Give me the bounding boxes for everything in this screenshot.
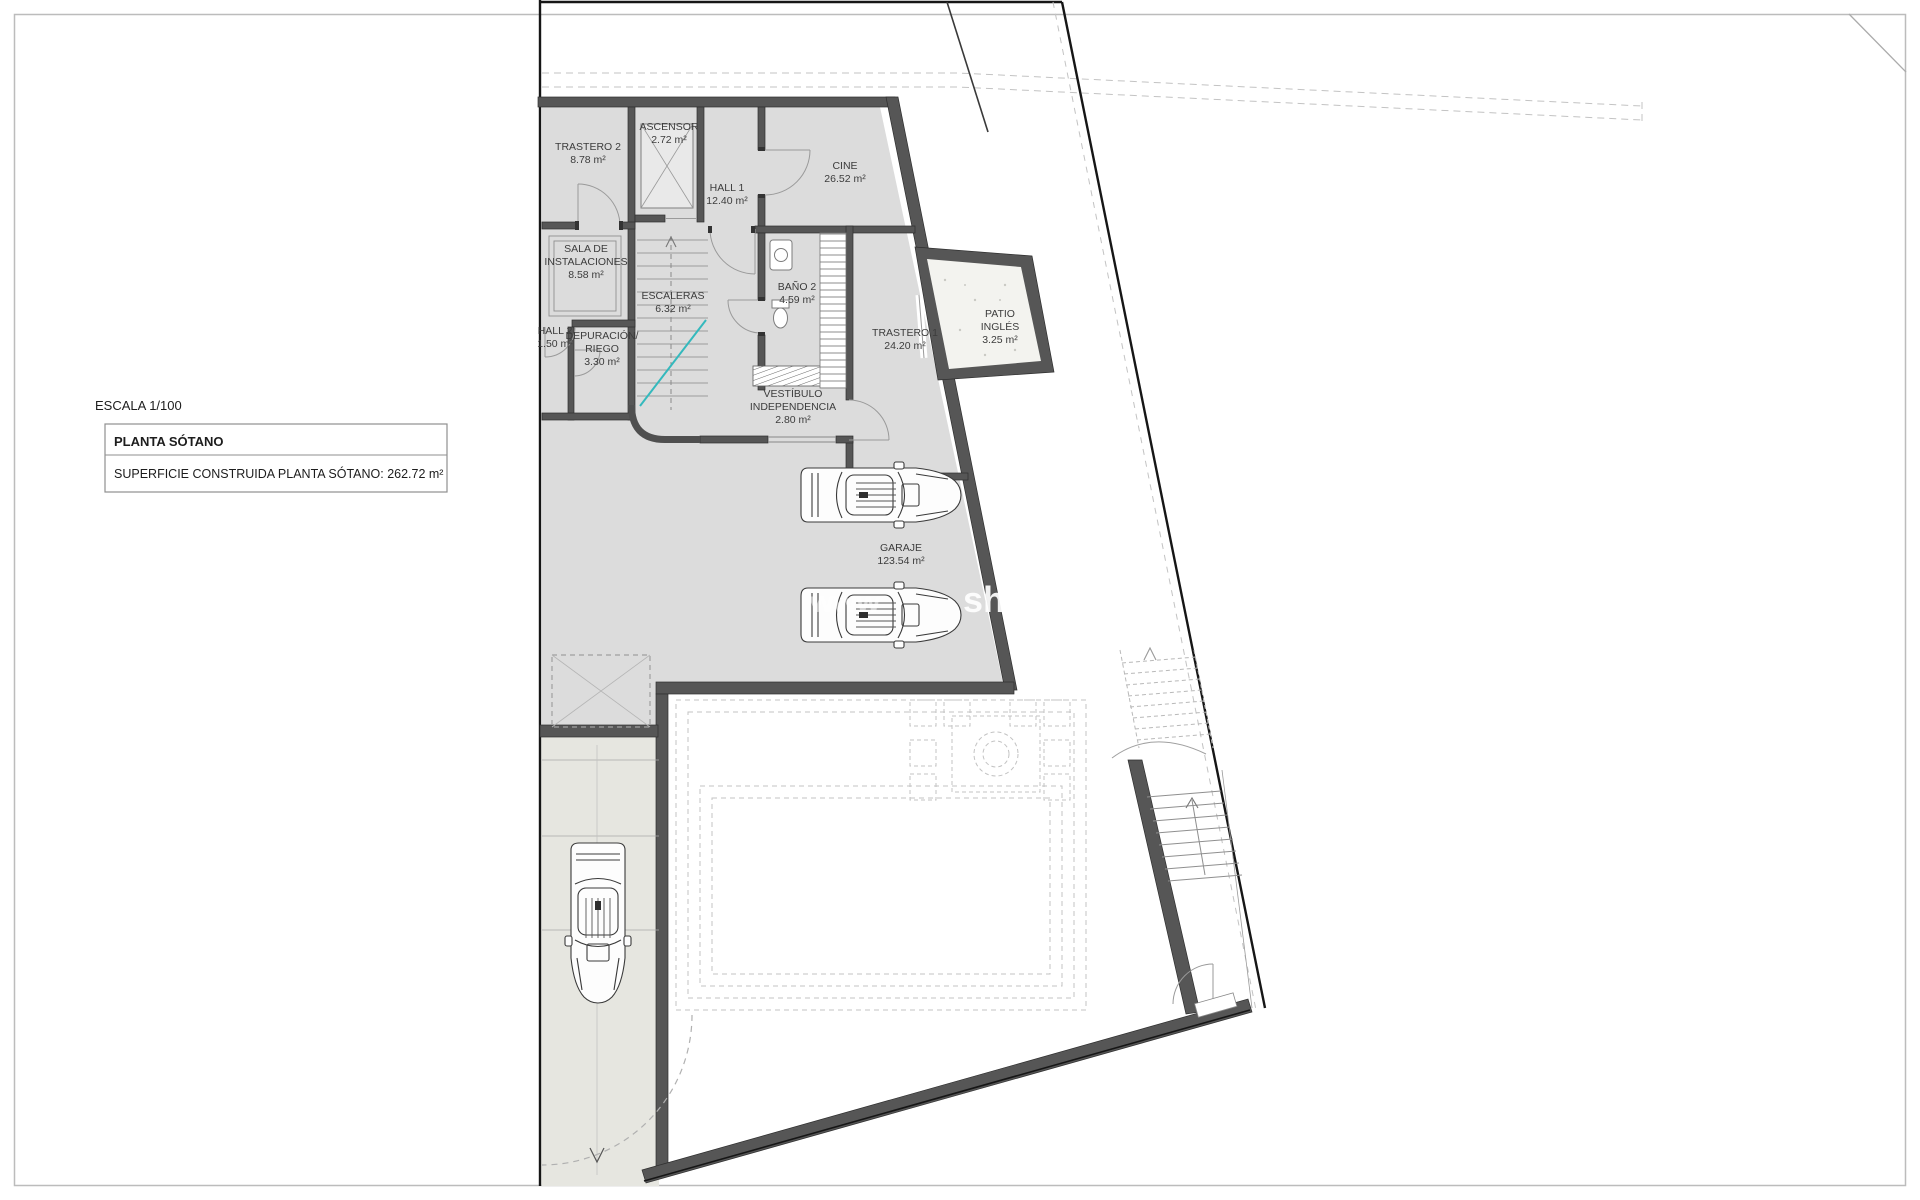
corner-cut-line (1849, 14, 1906, 72)
built-area-label: SUPERFICIE CONSTRUIDA PLANTA SÓTANO: 262… (114, 466, 443, 481)
pool-outline (700, 786, 1062, 986)
floor-plan-page: www shab TRASTERO 28.78 m²ASCENSOR2.72 m… (0, 0, 1920, 1200)
upper-dashed-stair (1120, 650, 1213, 748)
site-plan-svg: www shab TRASTERO 28.78 m²ASCENSOR2.72 m… (0, 0, 1920, 1200)
watermark-fragment-1: www (809, 586, 881, 619)
scale-label: ESCALA 1/100 (95, 398, 182, 413)
driveway-car (565, 843, 631, 1003)
plan-title: PLANTA SÓTANO (114, 434, 224, 449)
pool-terrace-dashed (676, 700, 1086, 1010)
shower-duct-hatch (820, 233, 846, 388)
terrace-furniture (910, 700, 1070, 800)
title-block: ESCALA 1/100 PLANTA SÓTANO SUPERFICIE CO… (95, 398, 447, 492)
boundary-wedge-line (947, 2, 988, 132)
watermark-fragment-2: shab (963, 579, 1047, 620)
room-label-patio-ingles: PATIOINGLÉS3.25 m² (981, 308, 1020, 346)
garage-car-1 (801, 462, 961, 528)
stair-corridor-wall (1128, 760, 1200, 1014)
room-label-garaje: GARAJE123.54 m² (877, 542, 925, 567)
room-label-hall-1: HALL 112.40 m² (706, 182, 748, 207)
